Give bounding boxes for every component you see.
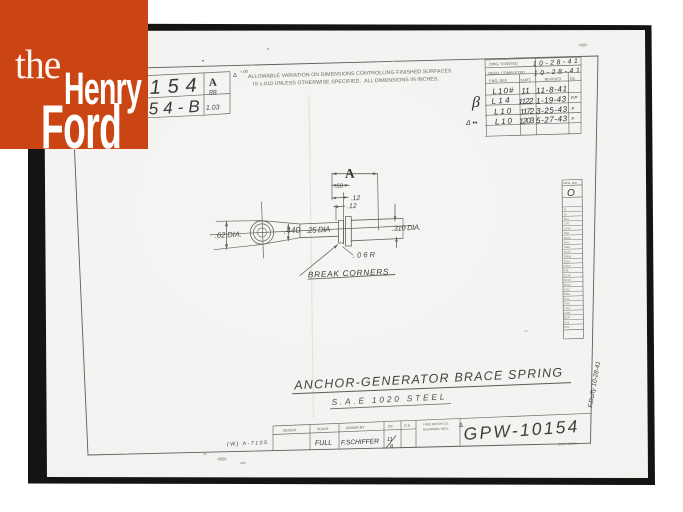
- svg-text:CK.: CK.: [388, 424, 394, 428]
- svg-text:DWG. STARTED: DWG. STARTED: [489, 62, 518, 67]
- svg-text:CHA: CHA: [564, 226, 571, 230]
- svg-text:.440: .440: [283, 225, 300, 236]
- svg-text:.62 DIA.: .62 DIA.: [215, 230, 242, 240]
- svg-text:A: A: [345, 166, 356, 181]
- svg-text:MIL: MIL: [564, 269, 569, 273]
- svg-text:L10: L10: [494, 106, 512, 116]
- svg-text:L14: L14: [491, 96, 510, 106]
- svg-text:Δ ••: Δ ••: [465, 120, 478, 127]
- svg-text:EDG: EDG: [564, 236, 571, 240]
- svg-text:NOR: NOR: [564, 278, 572, 282]
- svg-text:MEM: MEM: [564, 255, 572, 259]
- svg-text:RO: RO: [564, 217, 569, 221]
- svg-text:1203: 1203: [519, 116, 535, 126]
- svg-text:F.: F.: [572, 116, 575, 121]
- svg-text:DESIGN: DESIGN: [283, 428, 297, 433]
- svg-text:O: O: [567, 188, 575, 199]
- svg-text:TWI: TWI: [564, 302, 570, 306]
- svg-text:1.03: 1.03: [206, 104, 220, 112]
- svg-text:11: 11: [521, 86, 530, 96]
- svg-text:SAC: SAC: [564, 288, 571, 292]
- svg-text:HIG: HIG: [564, 241, 570, 245]
- svg-text:β: β: [471, 94, 480, 111]
- svg-text:L10#: L10#: [492, 86, 514, 96]
- svg-text:.25 DIA: .25 DIA: [306, 225, 330, 235]
- svg-text:F.: F.: [572, 106, 575, 111]
- svg-text:CHI: CHI: [564, 320, 569, 324]
- svg-text:.06R: .06R: [353, 250, 376, 260]
- svg-text:SUPT.: SUPT.: [520, 78, 531, 82]
- svg-text:1122: 1122: [518, 96, 534, 106]
- svg-text:.12: .12: [347, 203, 357, 210]
- svg-text:W: W: [564, 212, 567, 216]
- svg-text:CRA: CRA: [564, 264, 571, 268]
- svg-text:SCALE: SCALE: [317, 427, 329, 431]
- svg-text:11: 11: [387, 437, 393, 443]
- svg-text:A: A: [209, 77, 218, 89]
- svg-text:F.P: F.P: [571, 95, 577, 100]
- svg-text:CK.: CK.: [570, 77, 576, 81]
- svg-text:STL: STL: [564, 297, 570, 301]
- svg-text:.310 DIA.: .310 DIA.: [392, 222, 421, 233]
- svg-text:DEA: DEA: [564, 259, 571, 263]
- svg-text:.12: .12: [350, 195, 360, 202]
- svg-text:KEA: KEA: [564, 245, 571, 249]
- svg-text:POU: POU: [564, 283, 571, 287]
- svg-text:REVISED: REVISED: [545, 77, 562, 81]
- svg-text:DRAWN BY: DRAWN BY: [346, 425, 366, 430]
- svg-text:.88: .88: [207, 89, 217, 97]
- svg-text:Δ: Δ: [233, 73, 237, 79]
- svg-text:ENG. REF: ENG. REF: [489, 79, 508, 84]
- svg-text:LIN: LIN: [564, 222, 569, 226]
- svg-text:YPS: YPS: [564, 306, 570, 310]
- svg-text:RCH: RCH: [564, 250, 571, 254]
- svg-text:O.K.: O.K.: [404, 424, 411, 428]
- svg-text:SEA: SEA: [564, 292, 571, 296]
- svg-text:.50: .50: [334, 183, 343, 190]
- svg-text:DEL: DEL: [564, 231, 570, 235]
- svg-text:MFG. DIV.: MFG. DIV.: [564, 181, 578, 185]
- svg-text:L10: L10: [495, 116, 513, 126]
- svg-text:FULL: FULL: [315, 440, 332, 448]
- svg-text:SOM: SOM: [564, 273, 571, 277]
- svg-text:AAR: AAR: [564, 311, 571, 315]
- svg-text:CIN: CIN: [564, 325, 569, 329]
- svg-text:154: 154: [149, 75, 197, 99]
- svg-text:BUF: BUF: [564, 316, 570, 320]
- svg-text:GPW-10154: GPW-10154: [558, 442, 577, 447]
